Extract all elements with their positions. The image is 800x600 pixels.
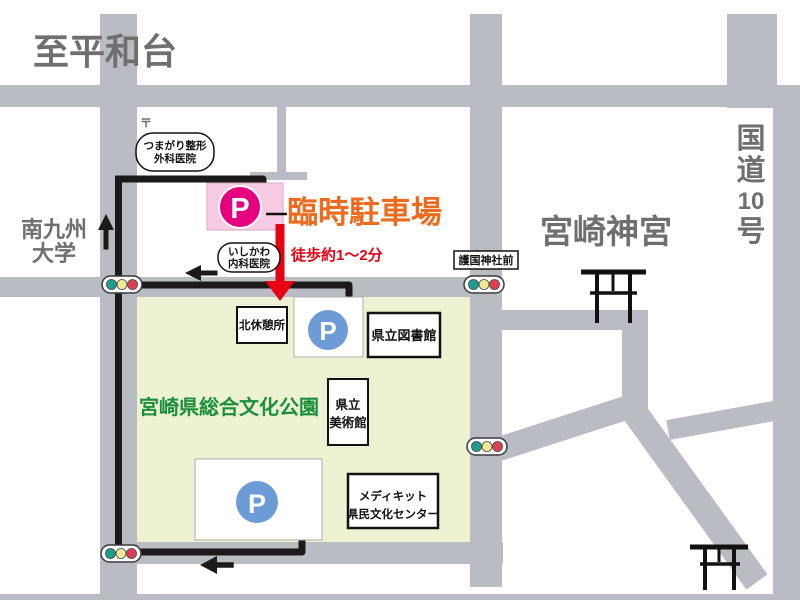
label-route10: 国 道 10 号 (736, 123, 765, 248)
rest-area-label: 北休憩所 (239, 318, 285, 332)
label-route10-char3: 10 (738, 188, 765, 215)
parking-p-letter-south: P (248, 489, 266, 519)
medikit-line1: メディキット (359, 489, 427, 503)
label-university-line2: 大学 (32, 241, 76, 266)
road-route10-main (773, 107, 800, 600)
temp-parking: P 臨時駐車場 (207, 183, 442, 230)
label-park-name: 宮崎県総合文化公園 (139, 395, 319, 419)
label-shrine: 宮崎神宮 (540, 213, 672, 250)
traffic-light-icon-park-east (467, 438, 507, 455)
rest-area: 北休憩所 (237, 307, 287, 343)
label-university-line1: 南九州 (21, 217, 87, 242)
gokoku-stop: 護国神社前 (454, 251, 518, 269)
clinic-ishikawa: いしかわ 内科医院 (218, 243, 280, 272)
clinic-tsumagari-box (136, 133, 214, 171)
road-diagonal-west (496, 404, 638, 450)
clinic-ishikawa-line1: いしかわ (228, 246, 270, 258)
postal-mark-icon: 〒 (140, 116, 152, 130)
road-lane-vertical (277, 107, 286, 180)
label-route10-char2: 道 (736, 154, 765, 187)
map-canvas: P 臨時駐車場 徒歩約1〜2分 至平和台 南九州 大学 宮崎神宮 国 道 10 … (0, 0, 800, 600)
road-bottom-strip (0, 594, 800, 600)
museum-line1: 県立 (335, 397, 361, 412)
clinic-tsumagari-line2: 外科医院 (153, 152, 196, 165)
museum: 県立 美術館 (328, 379, 368, 445)
medikit-line2: 県民文化センター (347, 507, 439, 521)
traffic-light-icon-gokoku (464, 276, 504, 293)
parking-p-letter-temp: P (230, 193, 249, 225)
traffic-light-icon-southwest (101, 545, 141, 562)
library: 県立図書館 (368, 313, 440, 357)
access-map: P 臨時駐車場 徒歩約1〜2分 至平和台 南九州 大学 宮崎神宮 国 道 10 … (0, 0, 800, 600)
parking-north: P (294, 297, 363, 357)
clinic-ishikawa-line2: 内科医院 (228, 257, 270, 270)
road-south-stub (470, 564, 502, 587)
traffic-light-icon-university (102, 276, 142, 293)
gokoku-stop-label: 護国神社前 (459, 253, 514, 267)
road-park-east-vertical (470, 14, 502, 587)
parking-south: P (195, 459, 322, 540)
walk-time-label: 徒歩約1〜2分 (290, 246, 383, 264)
medikit: メディキット 県民文化センター (347, 474, 439, 528)
temp-parking-label: 臨時駐車場 (287, 195, 442, 230)
label-route10-char4: 号 (736, 216, 765, 248)
label-route10-char1: 国 (736, 123, 765, 155)
clinic-tsumagari: つまがり整形 外科医院 (136, 133, 214, 171)
clinic-tsumagari-line1: つまがり整形 (144, 139, 207, 152)
library-label: 県立図書館 (371, 328, 436, 343)
label-heiwadai: 至平和台 (33, 31, 177, 72)
museum-box (328, 379, 368, 445)
road-route10-top (727, 14, 777, 108)
museum-line2: 美術館 (329, 415, 367, 430)
parking-p-letter-north: P (319, 316, 336, 346)
